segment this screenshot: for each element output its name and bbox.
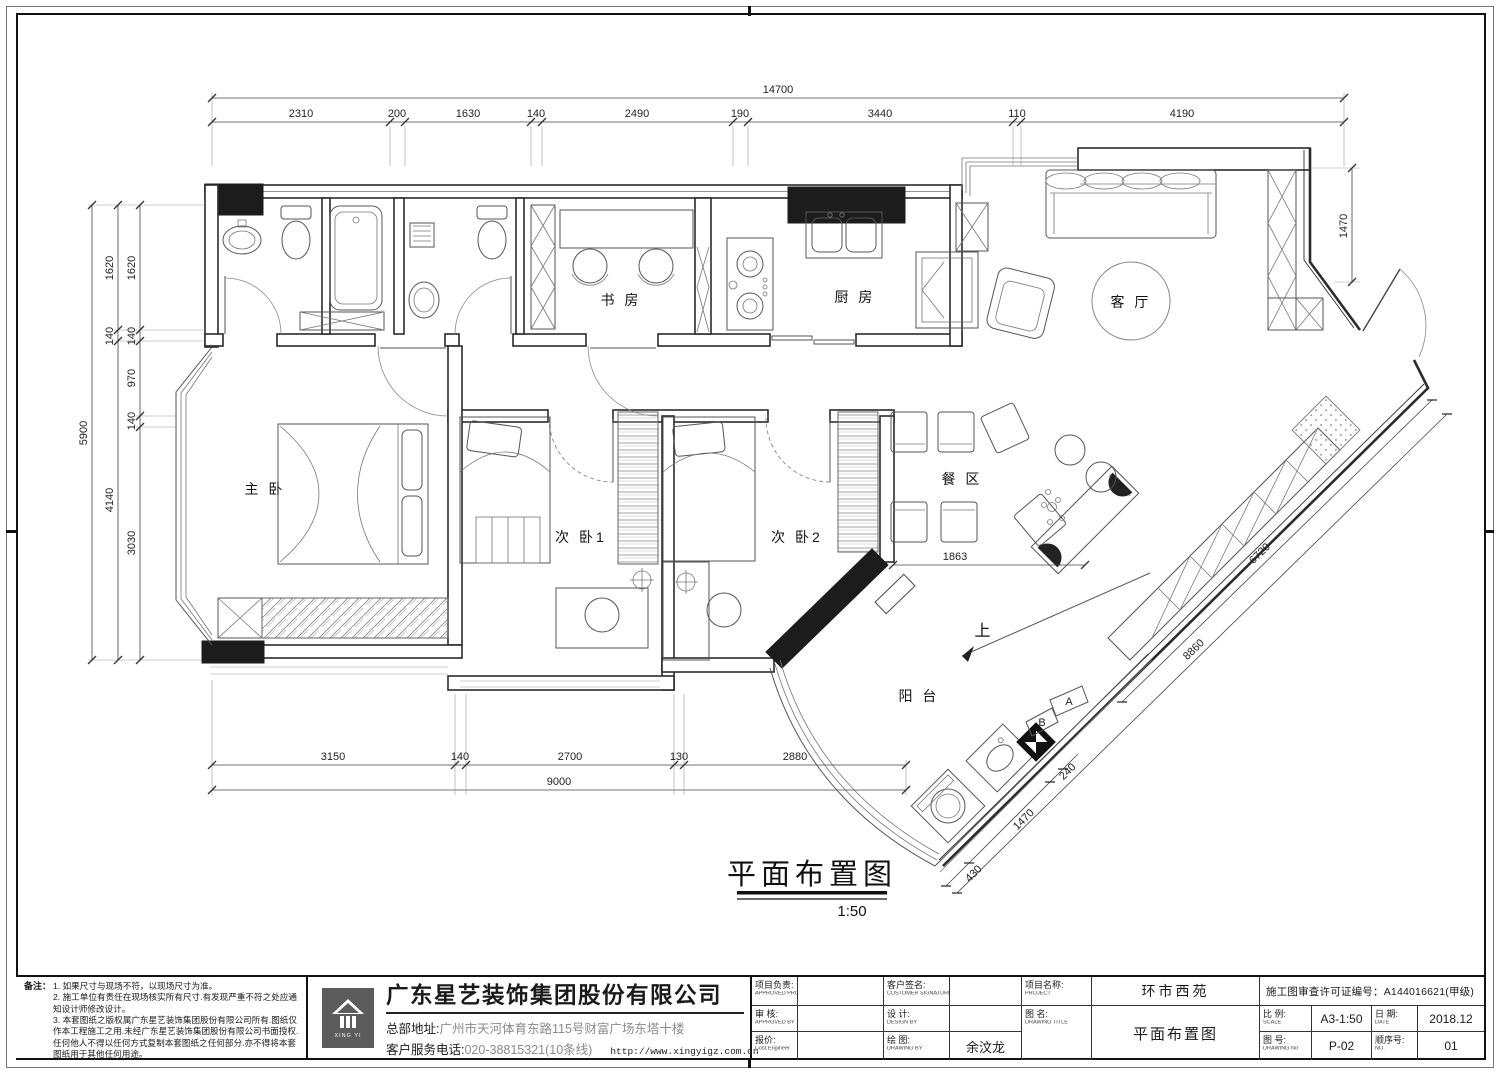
notes-label: 备注： bbox=[24, 981, 51, 1056]
cell-drawing-name-value: 平面布置图 bbox=[1092, 1006, 1260, 1060]
company-address: 总部地址:广州市天河体育东路115号财富广场东塔十楼 bbox=[386, 1018, 744, 1037]
company-phone-row: 客户服务电话:020-38815321(10条线) http://www.xin… bbox=[386, 1039, 744, 1058]
cell-scale-value: A3-1:50 bbox=[1312, 1006, 1372, 1032]
notes-line-1: 1. 如果尺寸与现场不符，以现场尺寸为准。 bbox=[53, 981, 300, 992]
company-logo: XING YI bbox=[322, 988, 374, 1048]
cell-approved-project: 项目负责:APPROVED PROJECT BY bbox=[752, 977, 798, 1006]
house-logo-icon bbox=[330, 997, 366, 1031]
cell-customer-value bbox=[950, 977, 1022, 1006]
cell-project-value: 环市西苑 bbox=[1092, 977, 1260, 1006]
phone-label: 客户服务电话: bbox=[386, 1043, 464, 1057]
frame-tick-right bbox=[1484, 530, 1494, 533]
frame-tick-bottom bbox=[748, 1058, 751, 1068]
notes-line-3: 3. 本套图纸之版权属广东星艺装饰集团股份有限公司所有.图纸仅作本工程施工之用.… bbox=[53, 1015, 300, 1060]
address-value: 广州市天河体育东路115号财富广场东塔十楼 bbox=[439, 1022, 684, 1036]
cell-date-value: 2018.12 bbox=[1418, 1006, 1484, 1032]
cell-check: 审 核:APPROVED BY bbox=[752, 1006, 798, 1032]
notes-line-2: 2. 施工单位有责任在现场核实所有尺寸.有发现严重不符之处应通知设计师修改设计。 bbox=[53, 992, 300, 1015]
cell-drawn: 绘 图:DRAWING BY bbox=[884, 1032, 950, 1060]
cell-date: 日 期:DATE bbox=[1372, 1006, 1418, 1032]
cell-drawn-value: 余汶龙 bbox=[950, 1032, 1022, 1060]
cell-cost: 报价:Cost Engineer bbox=[752, 1032, 798, 1060]
title-block: 备注： 1. 如果尺寸与现场不符，以现场尺寸为准。 2. 施工单位有责任在现场核… bbox=[16, 975, 1484, 1058]
notes-box: 备注： 1. 如果尺寸与现场不符，以现场尺寸为准。 2. 施工单位有责任在现场核… bbox=[16, 977, 308, 1058]
cell-design: 设 计:DESIGN BY bbox=[884, 1006, 950, 1032]
drawing-sheet: 主 卧 次 卧1 次 卧2 书 房 厨 房 客 厅 餐 区 阳 台 上 A B bbox=[0, 0, 1500, 1074]
cell-number-value: P-02 bbox=[1312, 1032, 1372, 1060]
frame-tick-left bbox=[6, 530, 16, 533]
cell-permit: 施工图审查许可证编号：A144016621(甲级) bbox=[1260, 977, 1484, 1006]
company-url: http://www.xingyigz.com.cn bbox=[610, 1046, 758, 1057]
title-block-table: 项目负责:APPROVED PROJECT BY 客户签名:CUSTOMER S… bbox=[752, 977, 1484, 1058]
company-block: XING YI 广东星艺装饰集团股份有限公司 总部地址:广州市天河体育东路115… bbox=[308, 977, 752, 1058]
address-label: 总部地址: bbox=[386, 1022, 439, 1036]
cell-design-value bbox=[950, 1006, 1022, 1032]
frame-tick-top bbox=[748, 6, 751, 16]
cell-seq: 顺序号:NO. bbox=[1372, 1032, 1418, 1060]
cell-project: 项目名称:PROJECT bbox=[1022, 977, 1092, 1006]
phone-value: 020-38815321(10条线) bbox=[464, 1043, 592, 1057]
company-name: 广东星艺装饰集团股份有限公司 bbox=[386, 978, 744, 1014]
cell-customer: 客户签名:CUSTOMER SIGNATURE BY bbox=[884, 977, 950, 1006]
cell-drawing-name: 图 名:DRAWING TITLE bbox=[1022, 1006, 1092, 1060]
cell-number: 图 号:DRAWING No bbox=[1260, 1032, 1312, 1060]
cell-approved-project-value bbox=[798, 977, 884, 1006]
cell-scale: 比 例:SCALE bbox=[1260, 1006, 1312, 1032]
sheet-inner-border bbox=[16, 13, 1486, 1060]
phone: 客户服务电话:020-38815321(10条线) bbox=[386, 1039, 592, 1058]
cell-cost-value bbox=[798, 1032, 884, 1060]
cell-seq-value: 01 bbox=[1418, 1032, 1484, 1060]
cell-check-value bbox=[798, 1006, 884, 1032]
logo-text: XING YI bbox=[334, 1033, 361, 1039]
